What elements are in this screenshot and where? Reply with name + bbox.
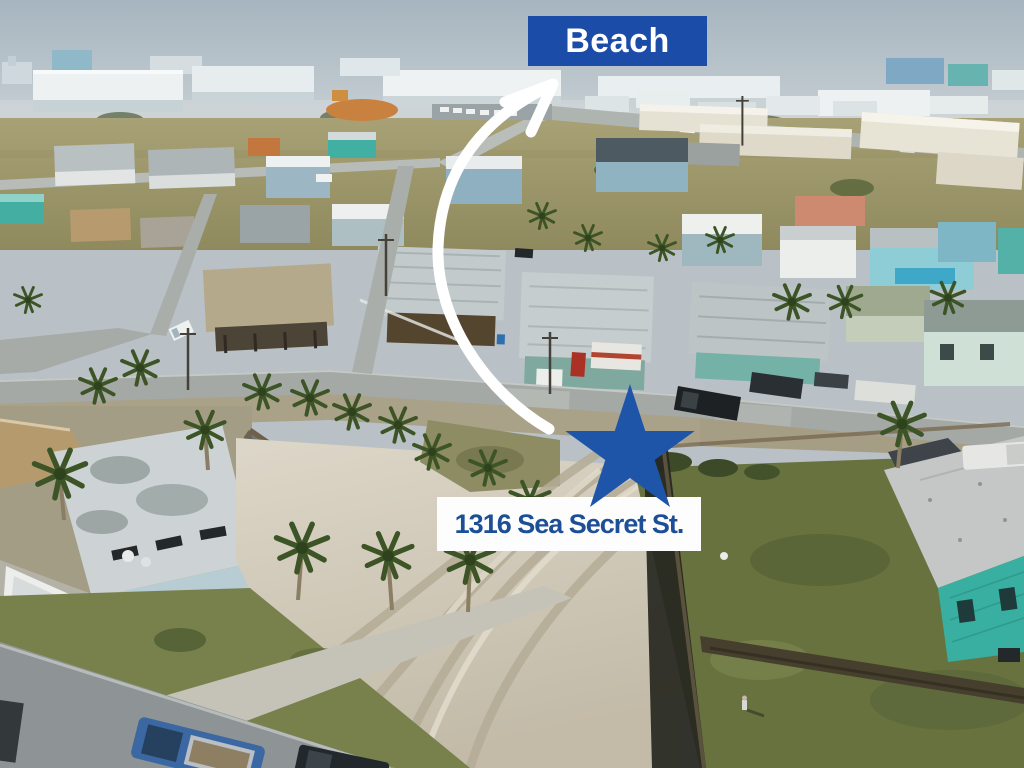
listing-photo: Beach 1316 Sea Secret St. [0,0,1024,768]
beach-label: Beach [528,16,707,66]
address-label: 1316 Sea Secret St. [437,497,701,551]
right-lot [634,424,1024,768]
aerial-photo [0,0,1024,768]
